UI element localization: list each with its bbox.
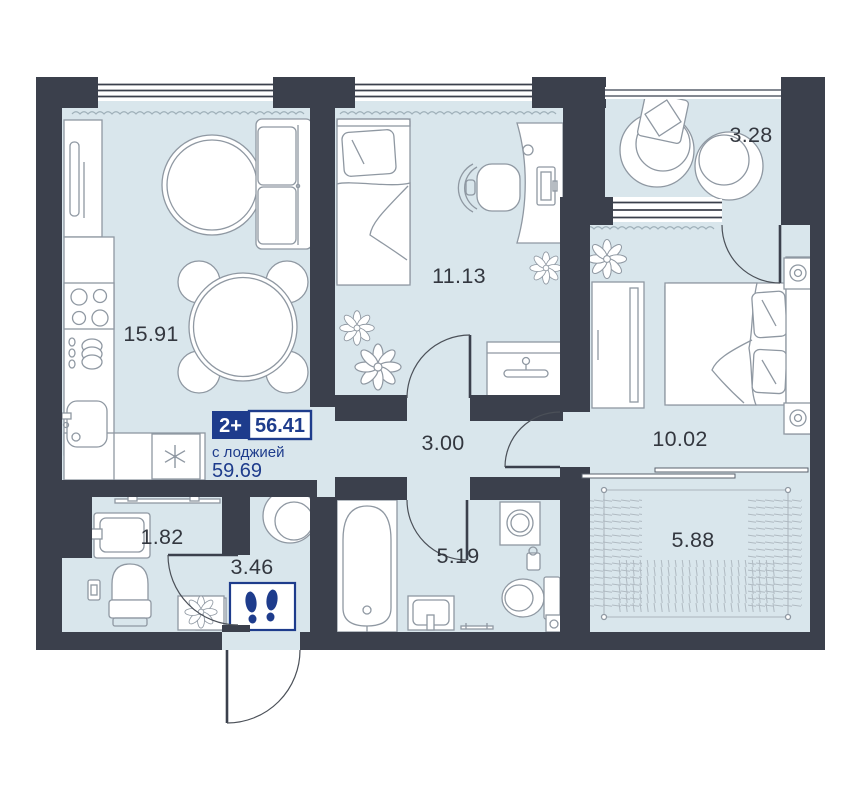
plant-icon bbox=[530, 252, 562, 284]
balcony-table bbox=[637, 92, 689, 144]
room-area-label-kitchen-living: 15.91 bbox=[123, 322, 178, 346]
room-area-label-bedroom-master: 10.02 bbox=[652, 427, 707, 451]
wc-toilet bbox=[109, 564, 151, 626]
pouf bbox=[263, 489, 317, 543]
room-area-label-hallway: 3.46 bbox=[230, 555, 273, 579]
kitchen-sink bbox=[62, 401, 107, 447]
single-bed bbox=[337, 119, 410, 285]
bathtub bbox=[337, 500, 397, 632]
plant-icon bbox=[340, 311, 375, 346]
entrance-mat bbox=[230, 583, 295, 630]
room-area-label-bathroom: 5.19 bbox=[436, 544, 479, 568]
floor-plan-svg: 15.91 11.13 3.28 10.02 3.00 5.19 1.82 3.… bbox=[0, 0, 862, 800]
with-loggia-label: с лоджией bbox=[212, 444, 285, 461]
plant-icon bbox=[355, 344, 401, 390]
bath-sink bbox=[408, 596, 454, 630]
floor-plan-page: 15.91 11.13 3.28 10.02 3.00 5.19 1.82 3.… bbox=[0, 0, 862, 800]
fridge bbox=[152, 434, 200, 479]
stove bbox=[64, 283, 114, 329]
dining-set bbox=[178, 261, 308, 393]
room-area-label-loggia: 5.88 bbox=[671, 528, 714, 552]
wardrobe-master bbox=[592, 282, 644, 408]
round-rug bbox=[162, 135, 262, 235]
double-bed bbox=[665, 283, 788, 405]
total-area-value: 56.41 bbox=[255, 415, 305, 437]
toilet-paper-holder bbox=[88, 580, 100, 600]
headboard-nightstands bbox=[784, 257, 812, 434]
corner-drain-box bbox=[546, 615, 562, 632]
with-loggia-area-value: 59.69 bbox=[212, 460, 262, 482]
bedroom-master-window bbox=[613, 199, 722, 222]
plant-icon bbox=[185, 596, 217, 628]
rooms-badge-label: 2+ bbox=[219, 415, 242, 437]
sofa bbox=[256, 119, 312, 249]
washing-machine bbox=[500, 502, 540, 545]
toilet bbox=[502, 577, 560, 619]
plant-icon bbox=[587, 239, 626, 278]
room-area-label-bedroom-small: 11.13 bbox=[432, 264, 486, 288]
wardrobe-small bbox=[487, 342, 563, 397]
room-area-label-wc: 1.82 bbox=[140, 525, 183, 549]
entrance-door bbox=[227, 650, 300, 723]
room-area-label-corridor: 3.00 bbox=[421, 431, 464, 455]
kitchen-window bbox=[98, 82, 273, 101]
tv-stand bbox=[64, 120, 102, 237]
bedroom-small-window bbox=[355, 82, 532, 101]
balcony-glazing bbox=[605, 87, 781, 99]
room-area-label-balcony: 3.28 bbox=[729, 123, 772, 147]
